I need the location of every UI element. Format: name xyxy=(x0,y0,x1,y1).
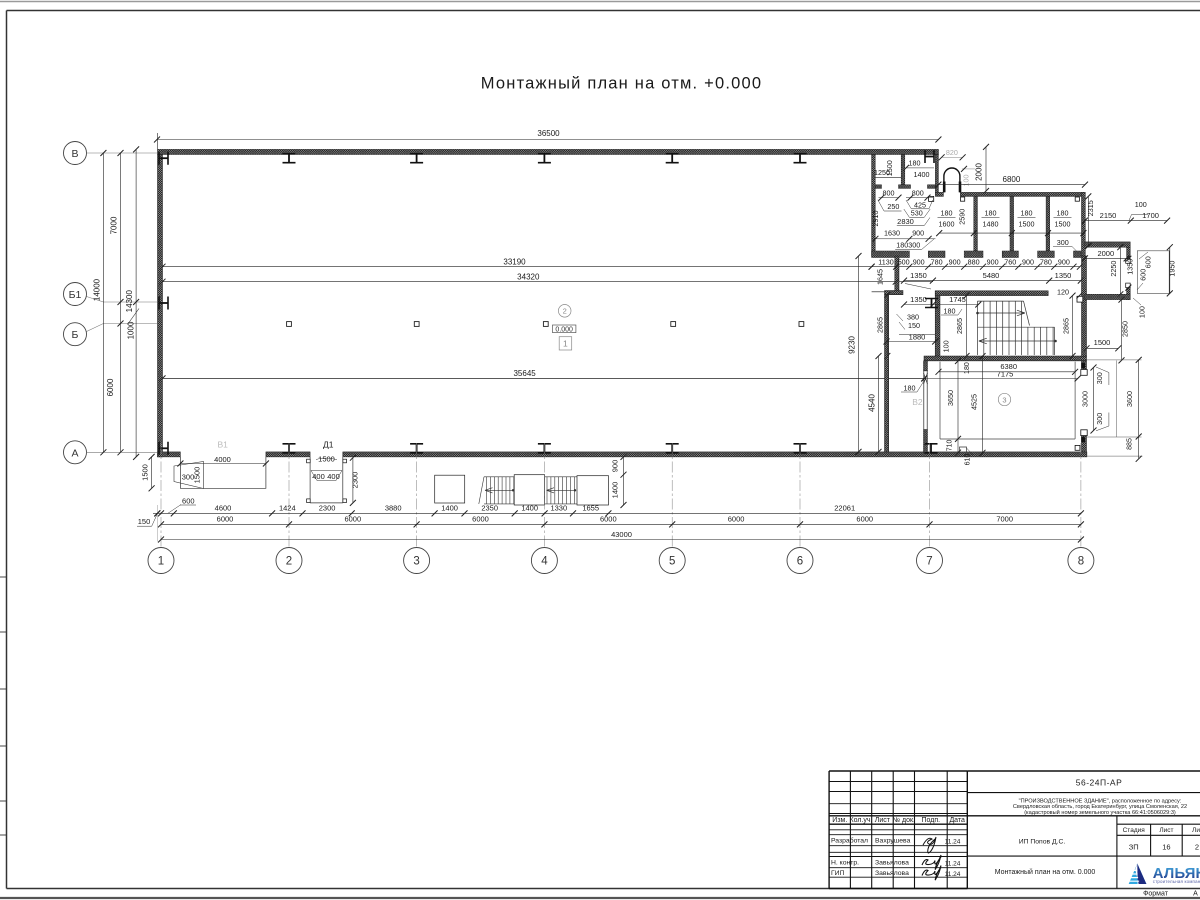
svg-text:4600: 4600 xyxy=(215,503,232,512)
svg-text:6000: 6000 xyxy=(856,515,873,524)
svg-text:14000: 14000 xyxy=(93,278,102,301)
svg-text:820: 820 xyxy=(946,148,958,157)
svg-text:900: 900 xyxy=(611,460,620,473)
svg-text:1350: 1350 xyxy=(1126,259,1135,275)
svg-text:1645: 1645 xyxy=(876,269,885,285)
svg-text:900: 900 xyxy=(912,229,924,238)
svg-text:885: 885 xyxy=(1126,438,1133,450)
svg-text:2850: 2850 xyxy=(1121,321,1130,337)
svg-text:610: 610 xyxy=(965,454,972,466)
svg-text:Формат: Формат xyxy=(1143,890,1169,897)
svg-text:3000: 3000 xyxy=(1080,391,1089,407)
svg-text:Лист: Лист xyxy=(875,817,891,824)
svg-text:1500: 1500 xyxy=(141,464,150,481)
svg-text:1500: 1500 xyxy=(318,455,335,464)
svg-text:1: 1 xyxy=(158,556,164,568)
svg-text:180: 180 xyxy=(964,362,971,374)
svg-text:6000: 6000 xyxy=(106,378,115,396)
svg-text:Б: Б xyxy=(72,329,79,341)
svg-text:2350: 2350 xyxy=(481,503,498,512)
svg-text:Монтажный план на отм. +0.000: Монтажный план на отм. +0.000 xyxy=(481,75,763,93)
svg-text:180: 180 xyxy=(985,209,997,218)
svg-text:1500: 1500 xyxy=(885,160,894,176)
svg-text:300: 300 xyxy=(1095,413,1104,425)
svg-text:2250: 2250 xyxy=(1109,261,1118,277)
svg-text:5480: 5480 xyxy=(983,271,1000,280)
svg-text:35645: 35645 xyxy=(513,369,536,378)
svg-text:6000: 6000 xyxy=(728,515,745,524)
svg-text:4: 4 xyxy=(541,556,548,568)
svg-text:ЗП: ЗП xyxy=(1129,843,1139,852)
svg-text:180: 180 xyxy=(896,240,908,249)
svg-text:2910: 2910 xyxy=(871,211,880,227)
svg-text:3: 3 xyxy=(413,556,419,568)
svg-text:1400: 1400 xyxy=(441,503,458,512)
svg-text:2000: 2000 xyxy=(975,163,984,181)
svg-text:34320: 34320 xyxy=(517,272,540,281)
svg-text:1600: 1600 xyxy=(939,220,955,229)
svg-text:1630: 1630 xyxy=(884,229,900,238)
svg-text:1: 1 xyxy=(563,338,568,348)
svg-text:6000: 6000 xyxy=(217,515,234,524)
svg-text:Монтажный план на отм. 0.000: Монтажный план на отм. 0.000 xyxy=(995,868,1096,876)
svg-text:3880: 3880 xyxy=(385,503,402,512)
svg-text:7: 7 xyxy=(926,556,932,568)
svg-text:3650: 3650 xyxy=(946,390,955,406)
svg-text:180: 180 xyxy=(904,383,916,392)
svg-text:Лист: Лист xyxy=(1159,827,1173,834)
svg-text:1950: 1950 xyxy=(1168,261,1177,277)
svg-text:600: 600 xyxy=(1144,256,1153,268)
svg-text:1655: 1655 xyxy=(582,503,599,512)
svg-text:400: 400 xyxy=(312,472,325,481)
svg-text:Дата: Дата xyxy=(949,817,965,824)
svg-text:1330: 1330 xyxy=(550,503,567,512)
svg-text:100: 100 xyxy=(1135,200,1147,209)
svg-text:ГИП: ГИП xyxy=(831,870,845,877)
svg-text:6000: 6000 xyxy=(472,515,489,524)
svg-text:180: 180 xyxy=(1021,209,1033,218)
svg-text:ИП Попов Д.С.: ИП Попов Д.С. xyxy=(1019,839,1066,846)
svg-text:2830: 2830 xyxy=(897,217,914,226)
svg-text:1350: 1350 xyxy=(910,295,927,304)
svg-text:36500: 36500 xyxy=(537,129,560,138)
svg-text:1500: 1500 xyxy=(1094,338,1111,347)
svg-text:2: 2 xyxy=(286,556,292,568)
svg-text:Ли: Ли xyxy=(1192,827,1200,834)
svg-text:Подп.: Подп. xyxy=(922,817,941,824)
svg-text:Стадия: Стадия xyxy=(1123,827,1146,834)
svg-text:780: 780 xyxy=(1040,257,1052,266)
svg-text:400: 400 xyxy=(327,472,340,481)
svg-text:Д1: Д1 xyxy=(323,440,334,450)
svg-text:1745: 1745 xyxy=(949,295,966,304)
svg-text:600: 600 xyxy=(1138,269,1147,281)
svg-text:2: 2 xyxy=(563,307,567,316)
svg-text:2590: 2590 xyxy=(958,209,967,225)
svg-text:строительная компания: строительная компания xyxy=(1153,879,1200,884)
svg-text:600: 600 xyxy=(182,497,195,506)
svg-text:14300: 14300 xyxy=(125,290,134,313)
svg-text:2000: 2000 xyxy=(1097,249,1114,258)
svg-text:9230: 9230 xyxy=(848,336,857,354)
svg-text:2300: 2300 xyxy=(319,503,336,512)
svg-text:1400: 1400 xyxy=(914,170,930,179)
svg-text:43000: 43000 xyxy=(611,530,632,539)
svg-text:0.000: 0.000 xyxy=(555,326,573,333)
svg-text:11.24: 11.24 xyxy=(945,861,961,868)
svg-text:2865: 2865 xyxy=(1061,318,1070,334)
svg-text:120: 120 xyxy=(1057,287,1069,296)
svg-text:900: 900 xyxy=(1058,257,1070,266)
svg-text:1400: 1400 xyxy=(611,482,620,499)
svg-text:В: В xyxy=(71,148,78,160)
svg-text:1700: 1700 xyxy=(1142,211,1159,220)
svg-text:800: 800 xyxy=(912,188,924,197)
svg-text:1500: 1500 xyxy=(193,467,202,484)
svg-text:№ док.: № док. xyxy=(893,817,915,824)
svg-text:880: 880 xyxy=(968,257,980,266)
svg-text:Завьялова: Завьялова xyxy=(875,870,909,877)
svg-text:1400: 1400 xyxy=(521,503,538,512)
svg-text:7175: 7175 xyxy=(997,369,1014,378)
svg-text:3600: 3600 xyxy=(1125,391,1134,407)
svg-text:6000: 6000 xyxy=(344,515,361,524)
svg-text:56-24П-АР: 56-24П-АР xyxy=(1076,778,1123,788)
svg-text:6800: 6800 xyxy=(1003,175,1021,184)
svg-text:А: А xyxy=(1193,890,1198,897)
svg-text:900: 900 xyxy=(913,257,925,266)
svg-text:А: А xyxy=(71,447,78,459)
svg-text:7000: 7000 xyxy=(110,216,119,234)
svg-text:500: 500 xyxy=(898,257,910,266)
svg-text:760: 760 xyxy=(1004,257,1016,266)
svg-text:Н. контр.: Н. контр. xyxy=(831,860,859,867)
svg-text:300: 300 xyxy=(1095,372,1104,384)
svg-text:16: 16 xyxy=(1162,843,1170,852)
svg-text:1880: 1880 xyxy=(909,332,926,341)
svg-text:6000: 6000 xyxy=(600,515,617,524)
svg-text:180: 180 xyxy=(944,306,956,315)
svg-text:22061: 22061 xyxy=(834,503,855,512)
svg-text:710: 710 xyxy=(946,439,953,451)
svg-text:2: 2 xyxy=(1195,843,1199,852)
svg-text:1500: 1500 xyxy=(1055,220,1071,229)
svg-text:780: 780 xyxy=(931,257,943,266)
svg-text:В1: В1 xyxy=(217,440,228,450)
svg-text:150: 150 xyxy=(908,321,920,330)
svg-text:2865: 2865 xyxy=(876,317,885,333)
svg-text:180: 180 xyxy=(909,159,921,168)
svg-text:Разработал: Разработал xyxy=(831,837,868,845)
svg-text:Изм.: Изм. xyxy=(832,817,847,824)
svg-text:100: 100 xyxy=(942,340,951,352)
svg-text:8: 8 xyxy=(1078,556,1084,568)
svg-text:4000: 4000 xyxy=(214,455,231,464)
svg-text:4540: 4540 xyxy=(868,394,877,412)
svg-text:Вахрушева: Вахрушева xyxy=(875,838,911,845)
svg-text:900: 900 xyxy=(987,257,999,266)
svg-text:1130: 1130 xyxy=(878,257,893,266)
svg-text:900: 900 xyxy=(949,257,961,266)
svg-text:1500: 1500 xyxy=(1019,220,1035,229)
svg-text:180: 180 xyxy=(941,209,953,218)
svg-text:2150: 2150 xyxy=(1100,211,1117,220)
svg-text:1350: 1350 xyxy=(1055,271,1072,280)
svg-text:2315: 2315 xyxy=(1086,200,1095,216)
svg-text:1424: 1424 xyxy=(279,503,296,512)
svg-text:100: 100 xyxy=(1137,306,1146,318)
svg-text:180: 180 xyxy=(1057,209,1069,218)
svg-text:4525: 4525 xyxy=(970,394,979,410)
svg-text:Завьялова: Завьялова xyxy=(875,860,909,867)
svg-text:1350: 1350 xyxy=(910,271,927,280)
svg-text:33190: 33190 xyxy=(503,257,526,266)
svg-text:11.24: 11.24 xyxy=(945,871,961,878)
svg-text:150: 150 xyxy=(138,517,151,526)
svg-text:6: 6 xyxy=(797,556,803,568)
svg-text:В2: В2 xyxy=(912,397,923,407)
svg-text:Б1: Б1 xyxy=(69,289,82,301)
svg-text:(кадастровый номер земельного: (кадастровый номер земельного участка 66… xyxy=(1024,809,1176,816)
svg-text:800: 800 xyxy=(883,188,895,197)
svg-text:3: 3 xyxy=(1002,395,1006,404)
svg-text:11.24: 11.24 xyxy=(945,839,961,846)
svg-text:Кол.уч.: Кол.уч. xyxy=(850,817,873,824)
svg-text:250: 250 xyxy=(887,202,899,211)
svg-text:900: 900 xyxy=(1022,257,1034,266)
svg-text:300: 300 xyxy=(908,240,920,249)
svg-text:300: 300 xyxy=(1057,238,1069,247)
svg-text:1480: 1480 xyxy=(983,220,999,229)
svg-text:2865: 2865 xyxy=(955,318,964,334)
svg-text:2300: 2300 xyxy=(351,472,360,489)
svg-text:5: 5 xyxy=(669,556,675,568)
svg-text:7000: 7000 xyxy=(996,515,1013,524)
